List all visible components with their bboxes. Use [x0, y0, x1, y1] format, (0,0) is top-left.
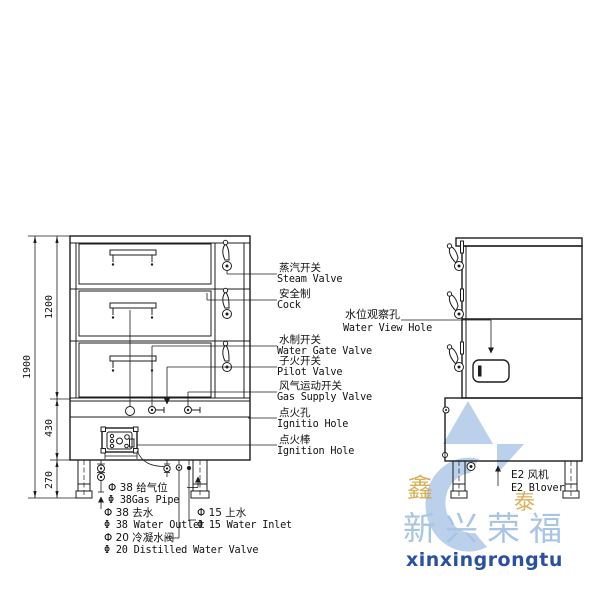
label-cock-zh: 安全制: [279, 287, 311, 300]
label-ignition-rod-en: Ignition Hole: [277, 446, 354, 457]
label-steam-valve-en: Steam Valve: [277, 274, 342, 285]
label-water-inlet-en: Φ 15 Water Inlet: [197, 520, 292, 531]
label-water-inlet-zh: Φ 15 上水: [197, 507, 247, 519]
label-water-outlet-zh: Φ 38 去水: [104, 507, 154, 519]
base-valve-symbol: [185, 407, 201, 414]
label-gas-pipe-zh: Φ 38 给气位: [108, 481, 168, 494]
label-ignition-hole-en: Ignitio Hole: [277, 419, 348, 430]
label-blower-zh: E2 风机: [511, 468, 549, 481]
water-outlet-pipe: [97, 460, 105, 492]
dimension-middle-section: 430: [44, 419, 55, 437]
water-inlet-pipe: [187, 460, 196, 520]
label-gas-pipe-en: Φ 38Gas Pipe: [108, 495, 179, 506]
dimension-overall-height: 1900: [22, 355, 33, 379]
drawer-handle: [110, 356, 156, 372]
base-valve-symbol: [149, 407, 165, 414]
cock-valve-handle-icon: [223, 288, 232, 318]
label-water-view-hole-zh: 水位观察孔: [345, 307, 400, 321]
drawer-handle: [110, 250, 156, 266]
steam-drawer-2: [79, 291, 211, 336]
distilled-water-pipe: [164, 460, 170, 477]
technical-drawing-canvas: 鑫 泰 新兴荣福 xinxingrongtu 1900 1200 430 270: [0, 0, 600, 600]
watermark-company-cn: 新兴荣福: [403, 509, 571, 548]
label-steam-valve-zh: 蒸汽开关: [279, 261, 321, 274]
label-water-gate-valve-zh: 水制开关: [279, 333, 321, 346]
watermark-triangle-shape: [443, 401, 493, 444]
steam-valve-handle-icon: [223, 240, 232, 270]
drawer-handle: [110, 303, 156, 319]
label-pilot-valve-zh: 子火开关: [279, 354, 321, 367]
front-left-leg: [76, 460, 92, 498]
label-cock-en: Cock: [277, 300, 301, 311]
gas-feed-curve-pipe: [137, 451, 165, 467]
steam-drawer-3: [79, 343, 211, 397]
label-ignition-rod-zh: 点火棒: [279, 433, 311, 446]
side-valve-handle-icon: [447, 289, 463, 319]
label-gas-supply-valve-en: Gas Supply Valve: [277, 392, 372, 403]
label-blower-en: E2 Blover: [511, 483, 564, 494]
dimension-lower-section: 270: [44, 471, 55, 489]
water-view-hole-window: [473, 360, 509, 382]
label-water-view-hole-en: Water View Hole: [343, 323, 432, 334]
side-top-cap: [456, 238, 582, 246]
side-right-leg: [563, 461, 579, 498]
ignition-port-circle: [126, 407, 135, 416]
front-cabinet-outline: [70, 236, 250, 460]
dimension-lines: 1900 1200 430 270: [22, 236, 76, 498]
side-valve-handle-icon: [447, 342, 463, 372]
label-water-outlet-en: Φ 38 Water Outlet: [104, 520, 205, 531]
watermark-company-en: xinxingrongtu: [406, 549, 563, 571]
watermark-seal-left: 鑫: [407, 474, 433, 504]
front-right-leg: [191, 460, 209, 498]
label-ignition-hole-zh: 点火孔: [279, 406, 311, 419]
label-pilot-valve-en: Pilot Valve: [277, 367, 342, 378]
ignition-control-box: [101, 427, 138, 453]
label-distilled-water-valve-zh: Φ 20 冷凝水阀: [104, 531, 174, 544]
label-distilled-water-valve-en: Φ 20 Distilled Water Valve: [104, 545, 258, 556]
dimension-upper-section: 1200: [44, 295, 55, 319]
label-gas-supply-valve-zh: 风气运动开关: [279, 379, 342, 392]
